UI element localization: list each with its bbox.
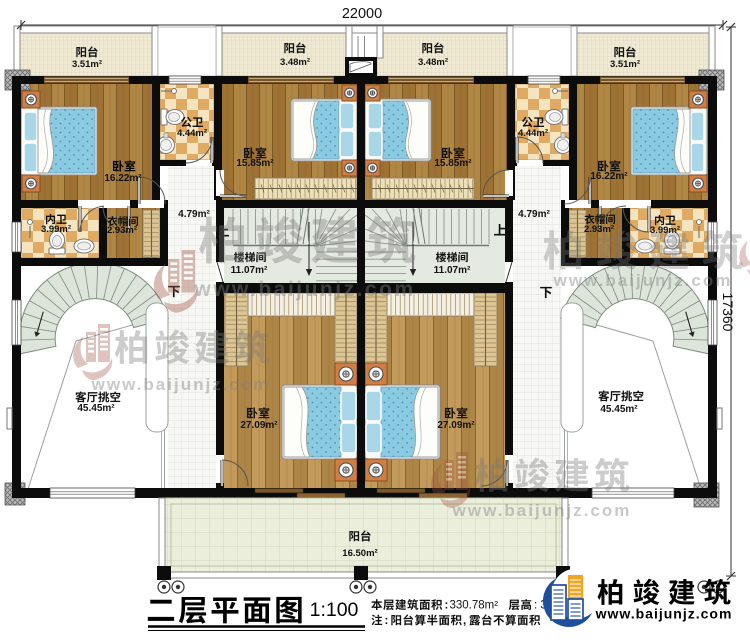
svg-text:4.79m²: 4.79m² (518, 209, 550, 220)
svg-text:3.51m²: 3.51m² (72, 59, 102, 70)
svg-text:330.78m²: 330.78m² (450, 600, 499, 612)
svg-text:2.93m²: 2.93m² (584, 224, 614, 235)
svg-text:3.51m²: 3.51m² (610, 59, 640, 70)
svg-text:,: , (463, 615, 466, 627)
svg-text:www.baijunjz.com: www.baijunjz.com (452, 501, 632, 520)
svg-text:2.93m²: 2.93m² (107, 225, 137, 236)
svg-text:45.45m²: 45.45m² (77, 403, 115, 414)
svg-text:15.85m²: 15.85m² (434, 158, 472, 169)
svg-text::: : (385, 615, 389, 627)
svg-text:16.22m²: 16.22m² (104, 173, 142, 184)
svg-text:22000: 22000 (342, 6, 382, 22)
svg-text:3.99m²: 3.99m² (41, 224, 71, 235)
svg-text:4.44m²: 4.44m² (177, 128, 207, 139)
svg-text:17360: 17360 (720, 293, 736, 332)
svg-text:4.44m²: 4.44m² (518, 128, 548, 139)
svg-text:www.baijunjz.com: www.baijunjz.com (91, 375, 271, 394)
svg-text:1:100: 1:100 (310, 599, 359, 621)
svg-text:45.45m²: 45.45m² (600, 404, 638, 415)
svg-text:11.07m²: 11.07m² (231, 265, 268, 276)
svg-text:15.85m²: 15.85m² (236, 158, 274, 169)
svg-text:4.79m²: 4.79m² (178, 209, 210, 220)
svg-text:27.09m²: 27.09m² (437, 420, 475, 431)
svg-text:3.48m²: 3.48m² (418, 57, 448, 68)
svg-text:www.baijunjz.com: www.baijunjz.com (553, 271, 733, 290)
svg-text:16.22m²: 16.22m² (590, 171, 628, 182)
svg-text:3.48m²: 3.48m² (280, 57, 310, 68)
svg-text::: : (445, 600, 449, 612)
svg-text:27.09m²: 27.09m² (240, 420, 278, 431)
svg-text:www.baijunjz.com: www.baijunjz.com (595, 606, 733, 622)
svg-text:16.50m²: 16.50m² (342, 548, 377, 559)
svg-text:www.baijunjz.com: www.baijunjz.com (193, 278, 415, 301)
svg-text:11.07m²: 11.07m² (434, 265, 471, 276)
